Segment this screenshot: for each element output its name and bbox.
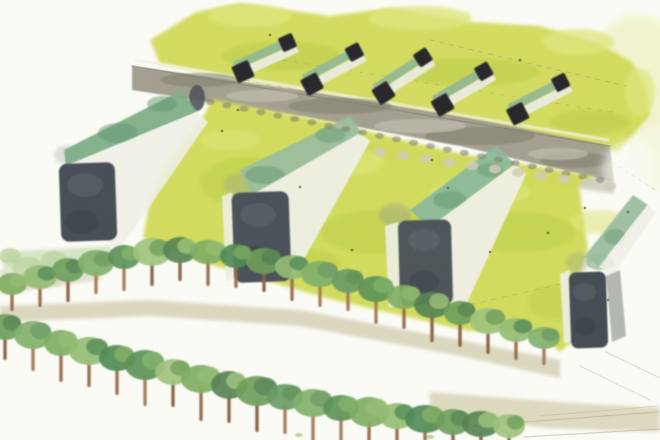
- paper-grain: [0, 0, 660, 440]
- watercolor-painting: [0, 0, 660, 440]
- watercolor-svg: [0, 0, 660, 440]
